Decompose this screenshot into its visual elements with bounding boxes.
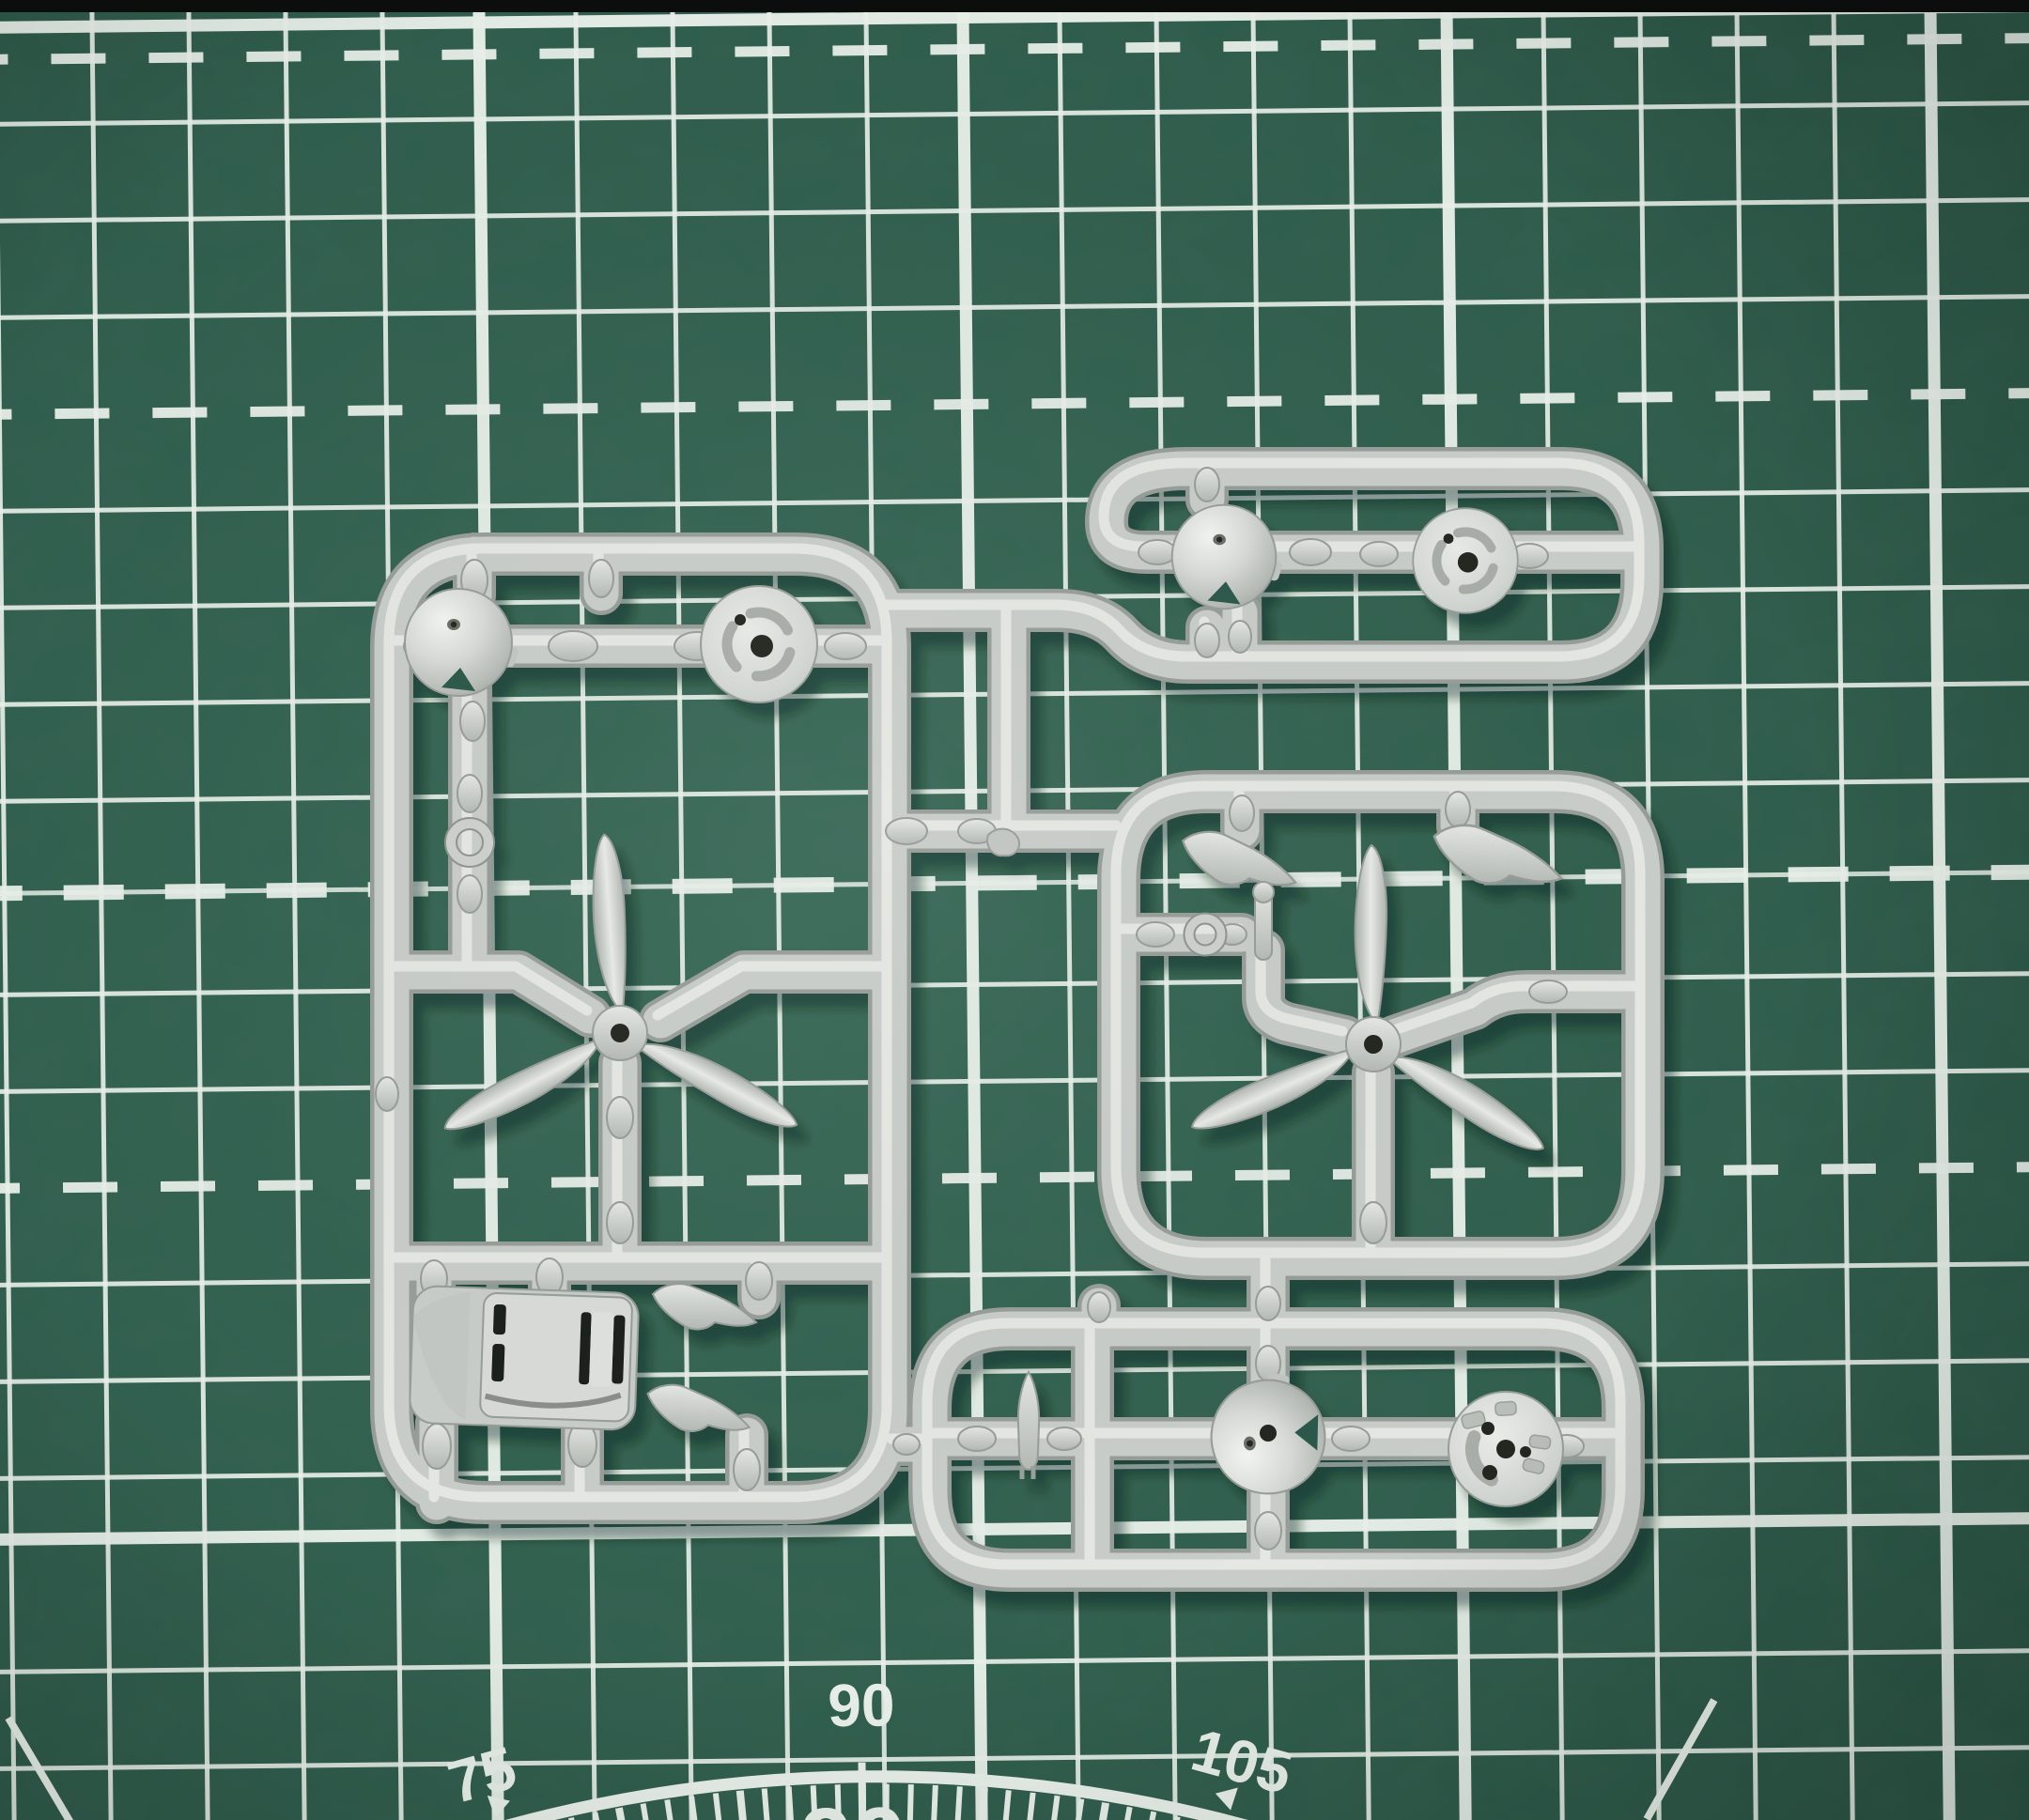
protractor-label-90: 90: [828, 1671, 895, 1739]
photo-cutting-mat-with-sprue: 75 90 105 90: [0, 0, 2029, 1820]
protractor-tick: [934, 1785, 937, 1820]
mat-texture: [0, 0, 2029, 1820]
protractor-tick: [980, 1788, 985, 1820]
protractor-tick: [789, 1787, 792, 1820]
protractor-tick: [957, 1786, 961, 1820]
protractor-label-90-inner-partial: 90: [799, 1787, 907, 1820]
protractor-tick: [909, 1784, 911, 1820]
protractor-tick: [765, 1788, 768, 1820]
scene-svg: 75 90 105 90: [0, 0, 2029, 1820]
mat-top-edge: [0, 0, 2029, 12]
